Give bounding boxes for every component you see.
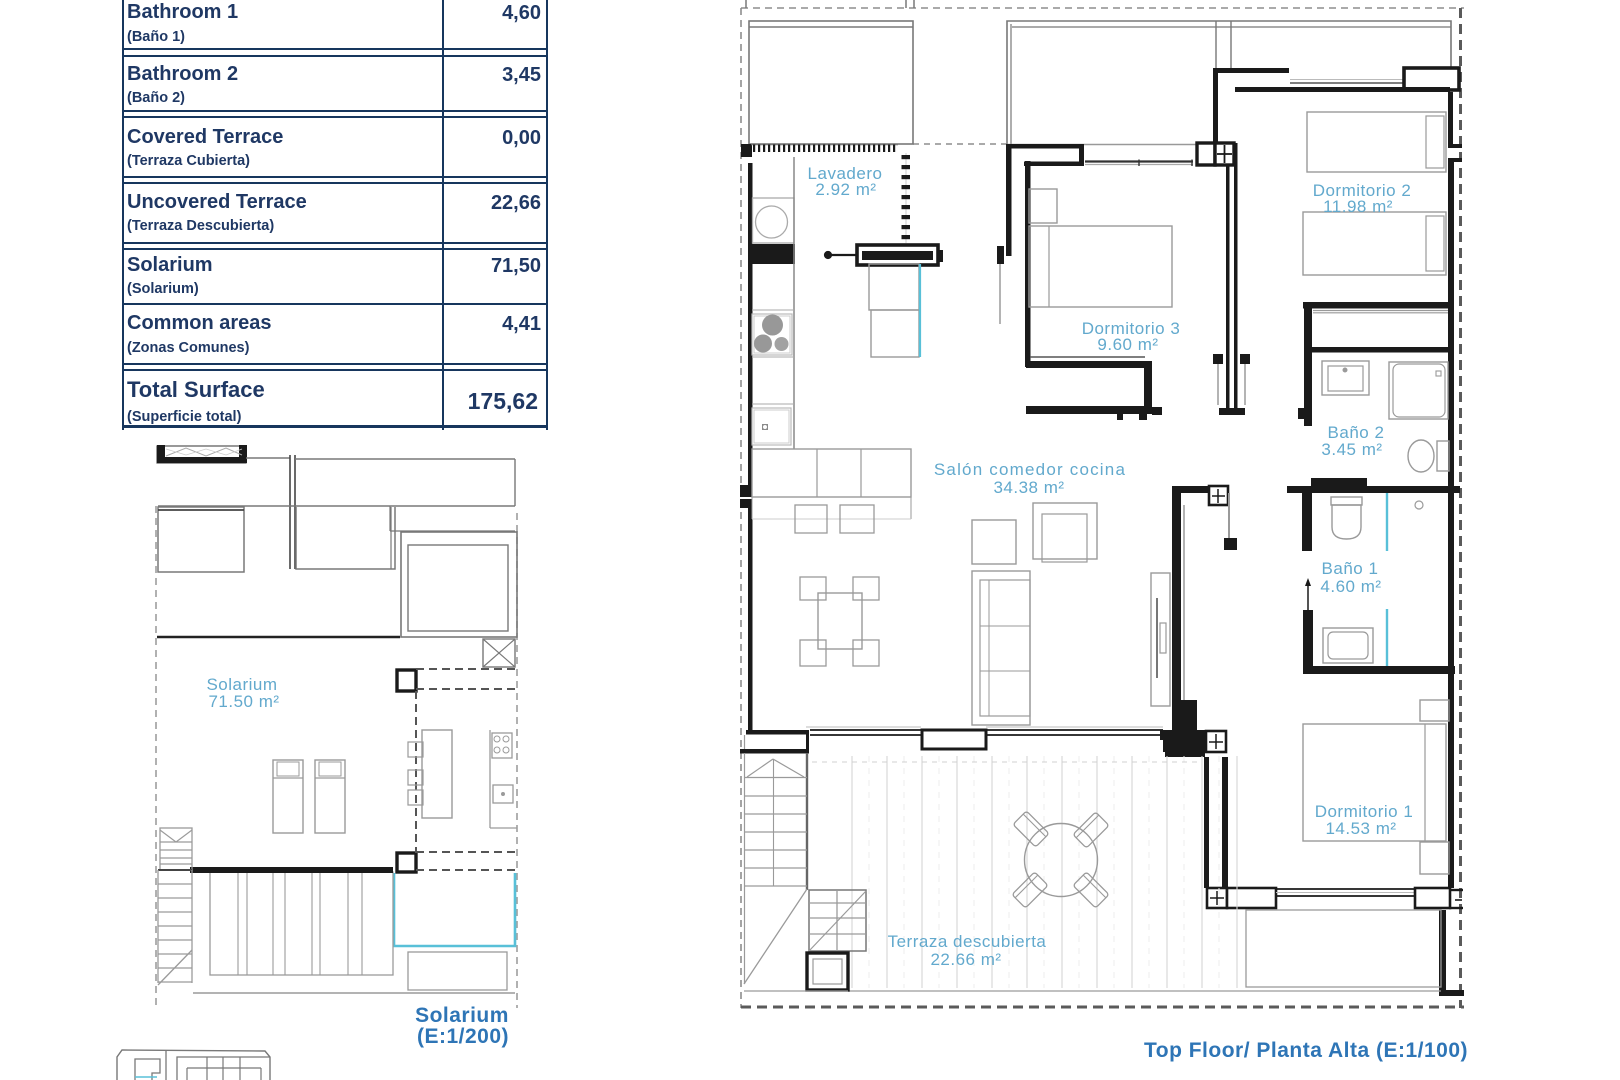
svg-text:22.66 m²: 22.66 m² [930, 950, 1001, 969]
svg-text:Terraza descubierta: Terraza descubierta [888, 932, 1047, 951]
svg-text:9.60 m²: 9.60 m² [1097, 335, 1158, 354]
svg-text:34.38 m²: 34.38 m² [993, 478, 1064, 497]
svg-text:Baño 1: Baño 1 [1322, 559, 1379, 578]
svg-text:14.53 m²: 14.53 m² [1325, 819, 1396, 838]
svg-text:Solarium: Solarium [415, 1004, 509, 1027]
svg-text:2.92 m²: 2.92 m² [815, 180, 876, 199]
svg-text:4.60 m²: 4.60 m² [1320, 577, 1381, 596]
svg-text:(E:1/200): (E:1/200) [417, 1025, 509, 1048]
svg-text:71.50 m²: 71.50 m² [208, 692, 279, 711]
svg-text:11.98 m²: 11.98 m² [1323, 197, 1393, 216]
svg-text:3.45 m²: 3.45 m² [1321, 440, 1382, 459]
svg-text:Salón comedor cocina: Salón comedor cocina [934, 460, 1126, 479]
svg-text:Top Floor/ Planta Alta (E:1/10: Top Floor/ Planta Alta (E:1/100) [1144, 1039, 1468, 1062]
